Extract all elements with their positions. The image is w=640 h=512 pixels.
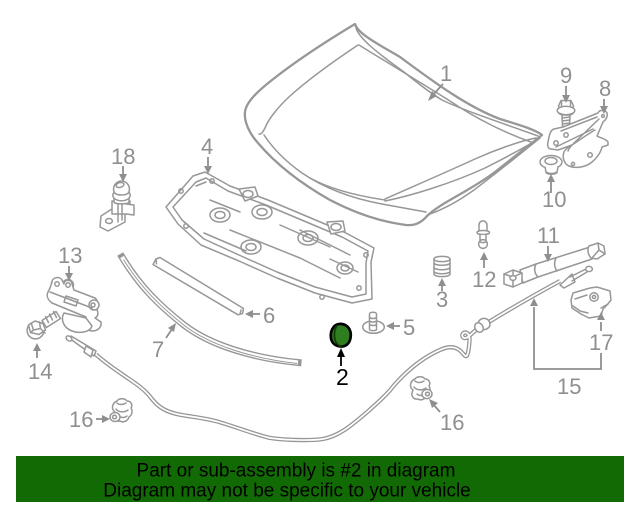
svg-text:5: 5	[403, 315, 415, 340]
svg-text:9: 9	[560, 63, 572, 88]
svg-text:Part or sub-assembly is #2 in: Part or sub-assembly is #2 in diagram	[137, 461, 456, 482]
svg-text:2: 2	[336, 364, 349, 390]
svg-text:13: 13	[58, 243, 82, 268]
svg-text:16: 16	[69, 407, 93, 432]
svg-text:17: 17	[589, 330, 613, 355]
svg-text:14: 14	[28, 359, 52, 384]
svg-text:4: 4	[201, 134, 213, 159]
svg-text:6: 6	[263, 303, 275, 328]
svg-text:15: 15	[557, 374, 581, 399]
svg-text:8: 8	[599, 76, 611, 101]
svg-text:7: 7	[152, 337, 164, 362]
svg-text:12: 12	[472, 267, 496, 292]
svg-text:1: 1	[440, 61, 452, 86]
svg-text:10: 10	[542, 187, 566, 212]
svg-text:Diagram may not be specific to: Diagram may not be specific to your vehi…	[103, 480, 471, 501]
svg-text:16: 16	[440, 410, 464, 435]
svg-text:11: 11	[537, 223, 560, 248]
svg-text:18: 18	[111, 144, 135, 169]
